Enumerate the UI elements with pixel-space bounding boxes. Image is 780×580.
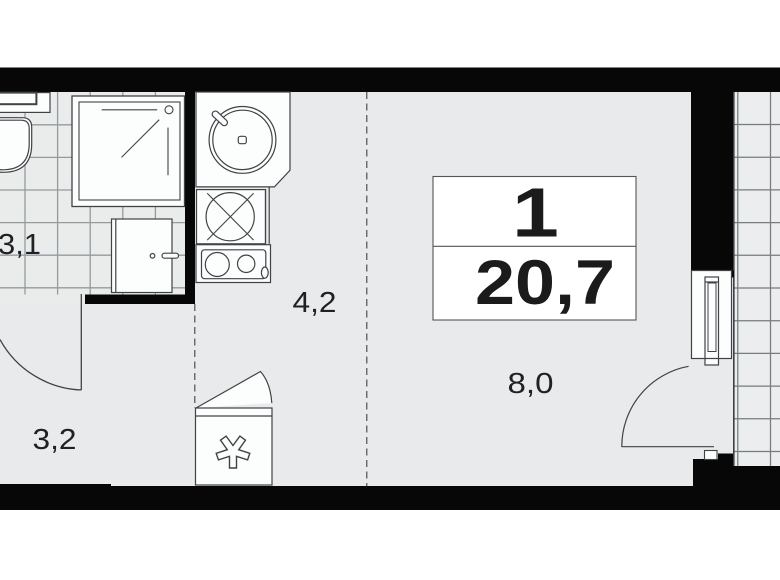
svg-text:4,2: 4,2: [293, 287, 337, 319]
svg-text:3,1: 3,1: [0, 229, 41, 261]
svg-text:20,7: 20,7: [475, 248, 615, 318]
svg-text:1: 1: [512, 174, 559, 252]
svg-text:3,2: 3,2: [33, 424, 77, 456]
svg-text:8,0: 8,0: [508, 368, 554, 400]
